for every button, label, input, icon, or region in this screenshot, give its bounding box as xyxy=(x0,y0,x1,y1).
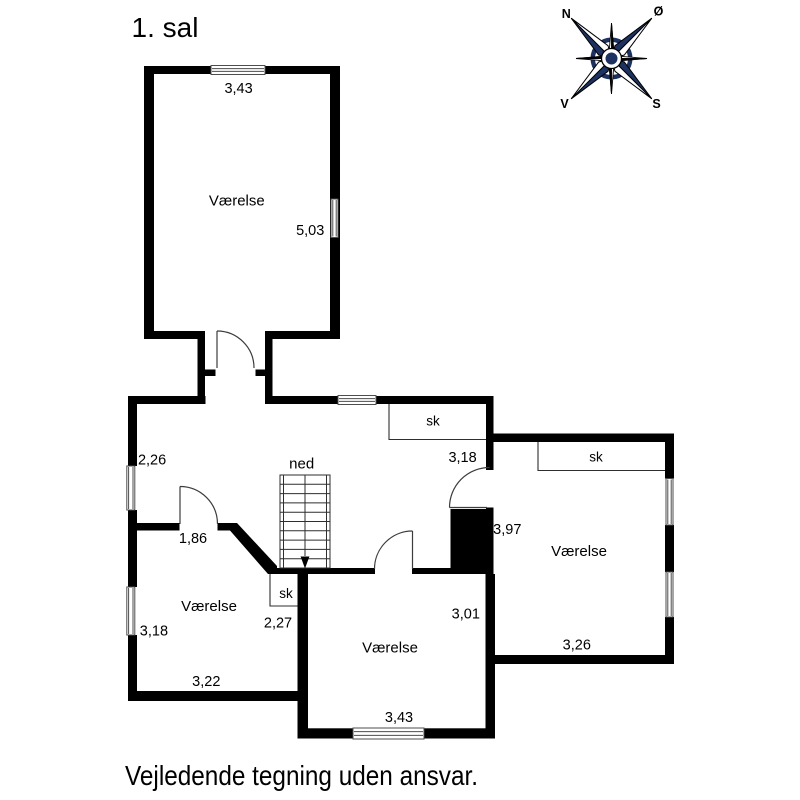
svg-text:N: N xyxy=(562,7,571,21)
svg-text:sk: sk xyxy=(589,450,603,465)
svg-text:3,43: 3,43 xyxy=(385,710,413,726)
svg-text:Værelse: Værelse xyxy=(181,598,237,615)
svg-text:1. sal: 1. sal xyxy=(132,12,199,43)
svg-text:2,26: 2,26 xyxy=(138,452,166,468)
svg-text:3,26: 3,26 xyxy=(563,638,591,654)
svg-text:Værelse: Værelse xyxy=(209,193,265,210)
svg-text:3,18: 3,18 xyxy=(448,450,476,466)
svg-text:3,01: 3,01 xyxy=(452,607,480,623)
svg-text:5,03: 5,03 xyxy=(296,223,324,239)
svg-text:3,97: 3,97 xyxy=(493,522,521,538)
svg-text:V: V xyxy=(560,97,569,111)
svg-text:ned: ned xyxy=(289,456,314,473)
svg-text:sk: sk xyxy=(426,414,440,429)
svg-text:1,86: 1,86 xyxy=(179,531,207,547)
svg-text:Vejledende tegning uden ansvar: Vejledende tegning uden ansvar. xyxy=(125,760,478,791)
svg-text:3,22: 3,22 xyxy=(192,674,220,690)
svg-text:sk: sk xyxy=(279,586,293,601)
svg-text:Værelse: Værelse xyxy=(551,543,607,560)
svg-text:3,43: 3,43 xyxy=(224,81,252,97)
svg-text:Ø: Ø xyxy=(654,5,664,19)
svg-text:3,18: 3,18 xyxy=(140,624,168,640)
svg-text:S: S xyxy=(652,97,660,111)
svg-text:Værelse: Værelse xyxy=(362,640,418,657)
svg-text:2,27: 2,27 xyxy=(264,615,292,631)
